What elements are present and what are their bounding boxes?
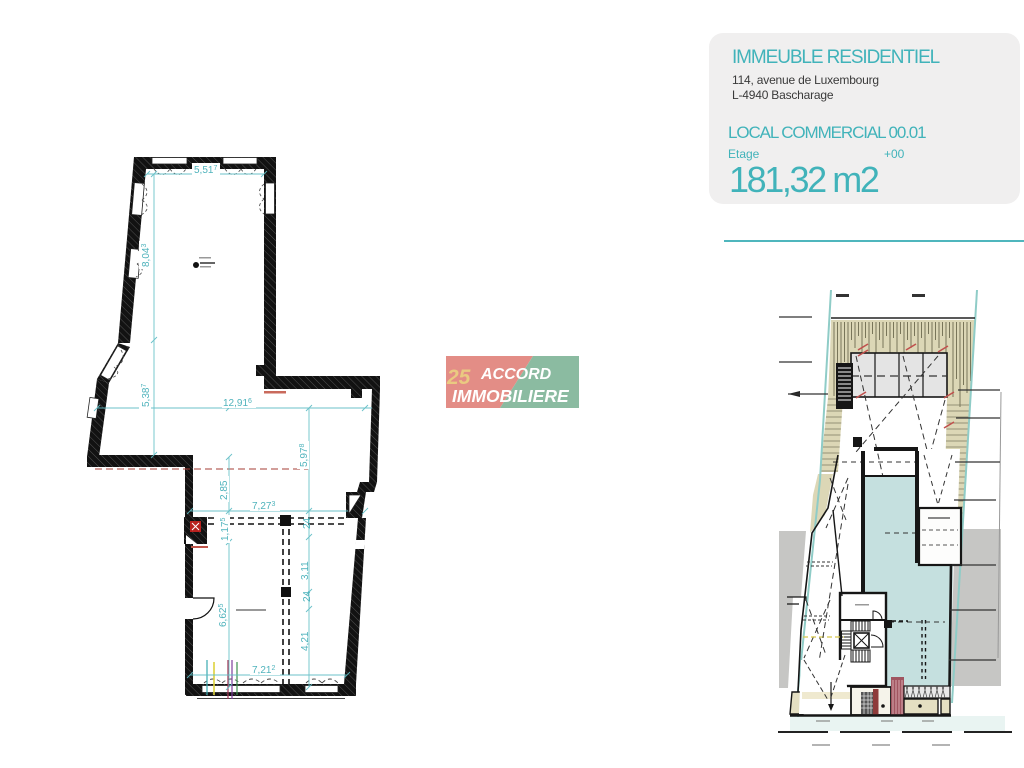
svg-text:12,916: 12,916 xyxy=(223,398,252,409)
svg-text:24: 24 xyxy=(302,590,313,602)
svg-text:ACCORD: ACCORD xyxy=(480,366,552,383)
svg-text:4,21: 4,21 xyxy=(300,631,311,651)
svg-text:24: 24 xyxy=(302,517,313,529)
svg-text:3,11: 3,11 xyxy=(300,561,311,580)
svg-text:2,85: 2,85 xyxy=(219,480,230,500)
svg-text:6,625: 6,625 xyxy=(218,604,229,627)
svg-text:IMMOBILIERE: IMMOBILIERE xyxy=(452,386,570,406)
